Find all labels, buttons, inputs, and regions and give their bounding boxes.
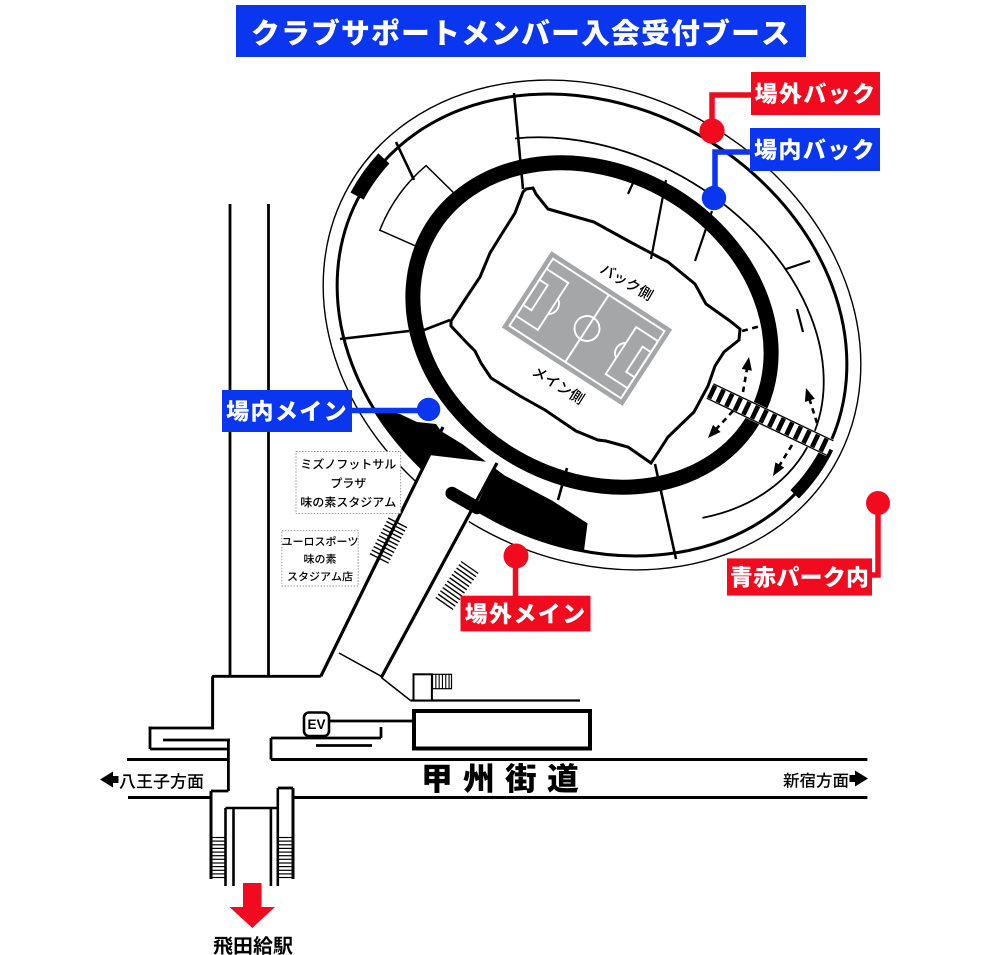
svg-text:EV: EV (307, 717, 325, 732)
